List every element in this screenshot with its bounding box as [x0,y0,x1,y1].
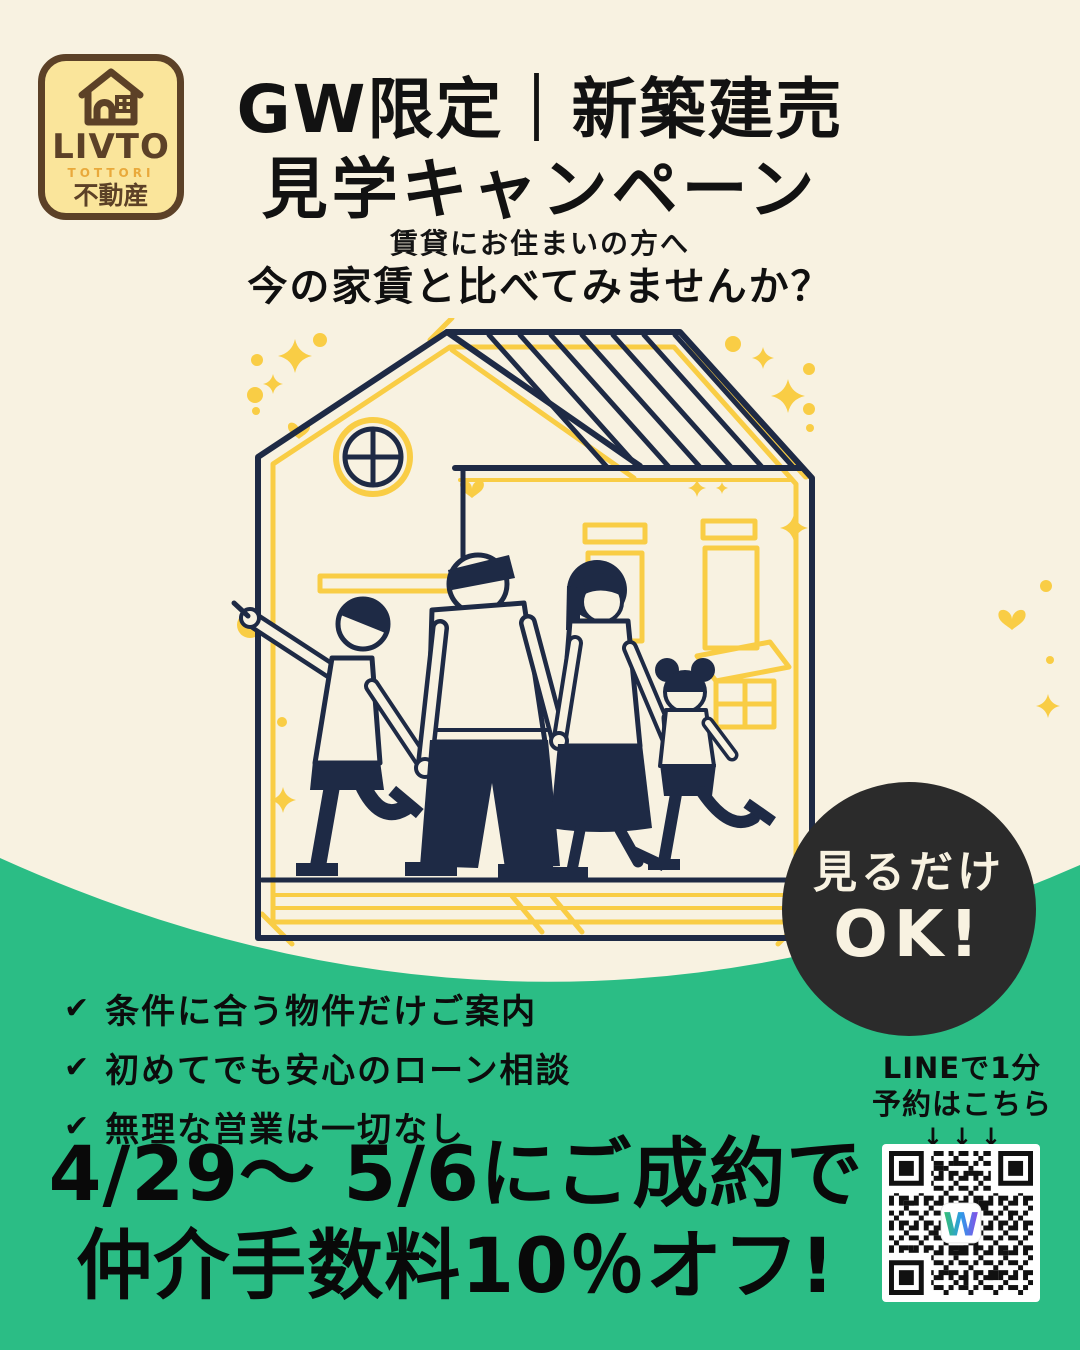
ok-badge: 見るだけ OK! [782,782,1036,1036]
benefit-item: ✔ 条件に合う物件だけご案内 [64,984,571,1033]
ok-badge-line1: 見るだけ [813,847,1005,899]
benefit-label: 条件に合う物件だけご案内 [105,984,537,1033]
qr-center-logo: W [941,1203,981,1243]
offer-line1: 4/29〜 5/6にご成約で [0,1128,912,1220]
benefit-item: ✔ 初めてでも安心のローン相談 [64,1043,571,1092]
qr-pattern: W [889,1151,1033,1295]
svg-text:W: W [943,1205,979,1243]
poster: LIVTO TOTTORI 不動産 GW限定｜新築建売 見学キャンペーン 賃貸に… [0,0,1080,1350]
question-text: 今の家賃と比べてみませんか？ [0,254,1080,312]
awning-window [697,642,789,727]
family-boy [234,591,428,876]
offer-line2: 仲介手数料10％オフ! [0,1220,912,1312]
ok-badge-line2: OK! [833,899,984,971]
line-cta: LINEで1分 予約はこちら ↓↓↓ [856,1050,1068,1150]
benefit-label: 初めてでも安心のローン相談 [105,1043,571,1092]
line-cta-title: LINEで1分 [856,1050,1068,1086]
roof-stripes [489,335,793,467]
round-window [336,420,410,494]
qr-code: W [882,1144,1040,1302]
offer-text: 4/29〜 5/6にご成約で 仲介手数料10％オフ! [0,1128,912,1312]
line-cta-subtitle: 予約はこちら [856,1086,1068,1122]
family-mother [550,560,668,878]
family-girl [648,658,776,870]
page-title-line2: 見学キャンペーン [0,136,1080,232]
check-icon: ✔ [64,1050,89,1085]
check-icon: ✔ [64,991,89,1026]
family-father [405,555,560,878]
